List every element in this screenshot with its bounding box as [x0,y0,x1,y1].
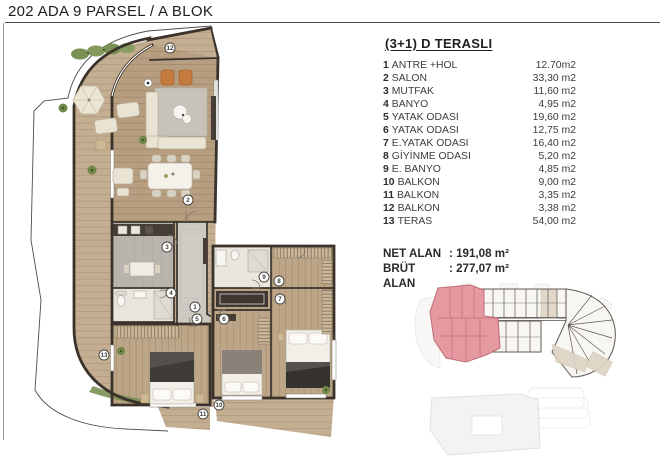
room-balkon-10-floor [215,396,334,437]
svg-text:9: 9 [262,274,266,281]
svg-text:12: 12 [166,45,174,52]
room-row: 2SALON33,30 m2 [383,72,576,85]
left-border-line [3,23,4,440]
room-marker-7: 7 [275,294,285,304]
room-marker-11: 11 [198,409,208,419]
room-row: 8GİYİNME ODASI5,20 m2 [383,150,576,163]
keyplan-pool-deck [430,394,540,455]
room-marker-9: 9 [259,272,269,282]
room-marker-6: 6 [219,314,229,324]
floor-plan-sheet: 202 ADA 9 PARSEL / A BLOK [0,0,660,466]
room-marker-1: 1 [190,302,200,312]
svg-text:10: 10 [215,402,223,409]
room-row: 10BALKON9,00 m2 [383,176,576,189]
title-divider [5,22,660,23]
svg-text:3: 3 [165,244,169,251]
room-row: 1ANTRE +HOL12.70m2 [383,59,576,72]
svg-text:6: 6 [222,316,226,323]
room-row: 9E. BANYO4,85 m2 [383,163,576,176]
svg-text:7: 7 [278,296,282,303]
room-marker-8: 8 [274,276,284,286]
room-row: 3MUTFAK11,60 m2 [383,85,576,98]
room-row: 13TERAS54,00 m2 [383,215,576,228]
room-marker-12: 12 [165,43,175,53]
room-row: 7E.YATAK ODASI16,40 m2 [383,137,576,150]
svg-text:1: 1 [193,304,197,311]
svg-text:13: 13 [100,352,108,359]
page-title: 202 ADA 9 PARSEL / A BLOK [8,3,213,20]
svg-text:2: 2 [186,197,190,204]
site-key-plan [402,283,660,463]
svg-text:11: 11 [200,411,207,418]
hall-furniture [181,230,207,304]
room-row: 6YATAK ODASI12,75 m2 [383,124,576,137]
room-marker-3: 3 [162,242,172,252]
room-row: 4BANYO4,95 m2 [383,98,576,111]
room-marker-4: 4 [166,288,176,298]
room-row: 5YATAK ODASI19,60 m2 [383,111,576,124]
svg-text:4: 4 [169,290,173,297]
room-list: 1ANTRE +HOL12.70m2 2SALON33,30 m2 3MUTFA… [383,59,576,228]
net-area-row: NET ALAN : 191,08 m² [383,246,509,261]
room-marker-5: 5 [192,314,202,324]
svg-text:5: 5 [195,316,199,323]
corridor-console [216,291,268,307]
floor-plan-drawing: 1 2 3 4 5 6 7 8 9 10 11 12 13 [5,25,377,465]
room-row: 12BALKON3,38 m2 [383,202,576,215]
room-marker-13: 13 [99,350,109,360]
room-marker-10: 10 [214,400,224,410]
room-marker-2: 2 [183,195,193,205]
room-row: 11BALKON3,35 m2 [383,189,576,202]
unit-type-heading: (3+1) D TERASLI [385,36,492,51]
svg-text:8: 8 [277,278,281,285]
